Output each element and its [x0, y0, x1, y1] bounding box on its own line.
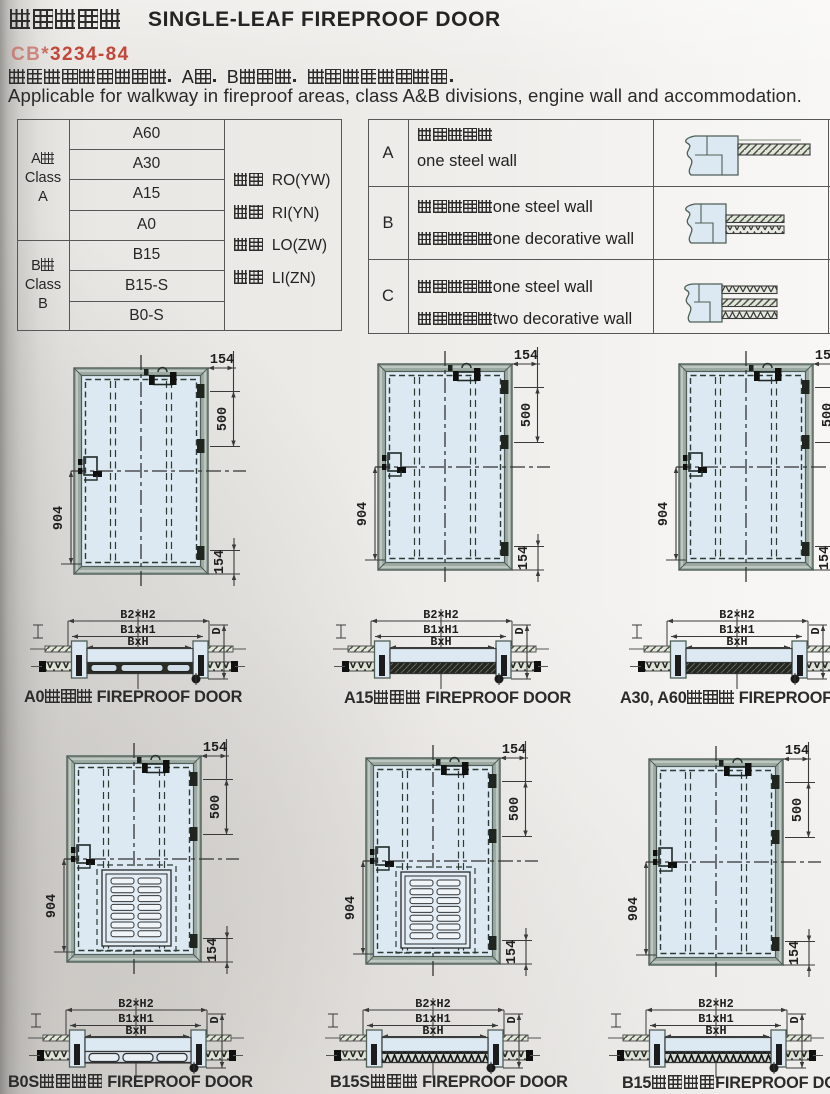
- svg-text:B2×H2: B2×H2: [415, 997, 450, 1011]
- svg-text:BxH: BxH: [430, 635, 451, 649]
- svg-text:B2×H2: B2×H2: [698, 997, 733, 1011]
- svg-text:B2×H2: B2×H2: [120, 608, 155, 622]
- svg-text:BxH: BxH: [125, 1024, 146, 1038]
- svg-text:B2×H2: B2×H2: [719, 608, 754, 622]
- svg-text:BxH: BxH: [422, 1024, 443, 1038]
- svg-text:D: D: [809, 627, 823, 634]
- svg-text:BxH: BxH: [705, 1024, 726, 1038]
- svg-text:D: D: [210, 627, 224, 634]
- svg-text:B2×H2: B2×H2: [118, 997, 153, 1011]
- svg-text:BxH: BxH: [127, 635, 148, 649]
- svg-text:D: D: [513, 627, 527, 634]
- svg-text:D: D: [208, 1016, 222, 1023]
- svg-text:B2×H2: B2×H2: [423, 608, 458, 622]
- svg-text:D: D: [505, 1016, 519, 1023]
- svg-text:D: D: [788, 1016, 802, 1023]
- svg-text:BxH: BxH: [726, 635, 747, 649]
